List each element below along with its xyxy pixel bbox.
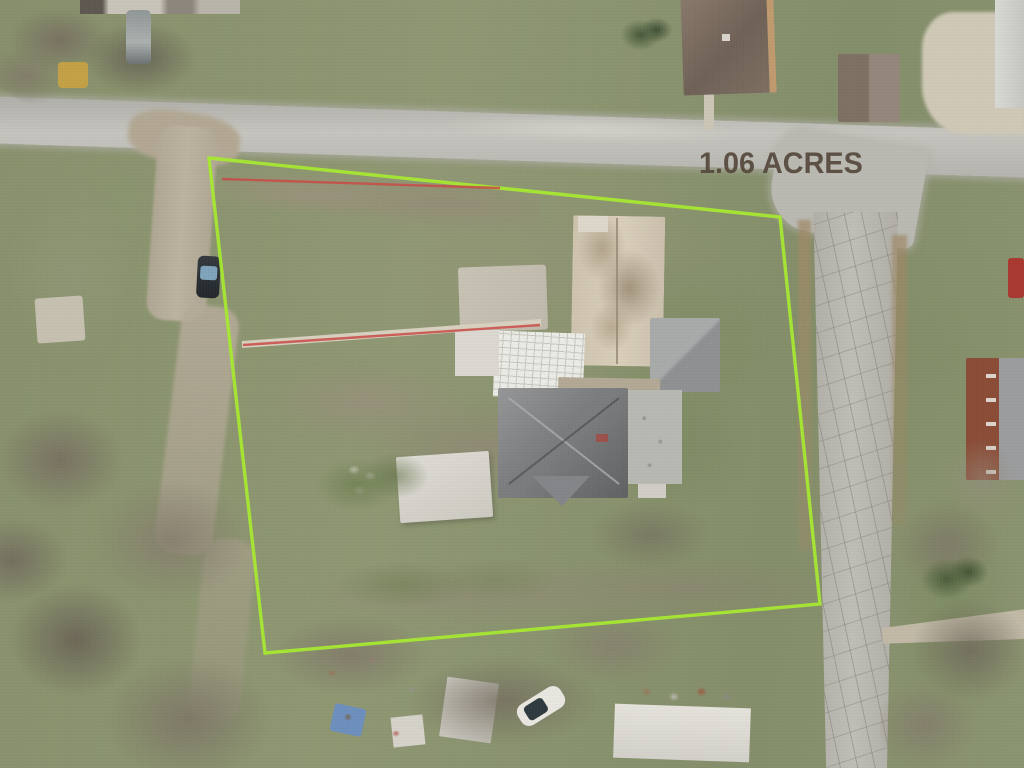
annotation-overlay: [0, 0, 1024, 768]
aerial-property-photo: 1.06 ACRES: [0, 0, 1024, 768]
lot-boundary-outline: [209, 158, 820, 653]
acreage-label: 1.06 ACRES: [699, 147, 863, 181]
measurement-line-mid: [243, 325, 540, 345]
